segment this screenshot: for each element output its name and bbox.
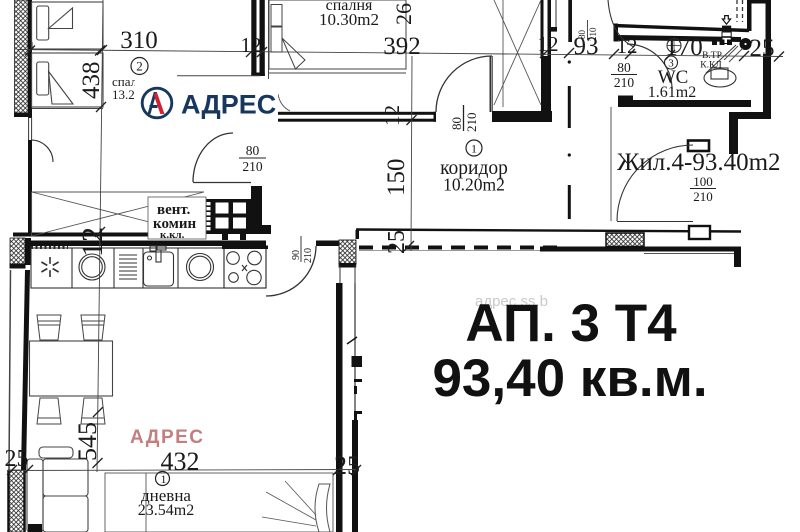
svg-text:12: 12	[241, 33, 262, 57]
svg-text:12: 12	[617, 34, 638, 58]
svg-text:210: 210	[303, 248, 314, 263]
svg-text:210: 210	[588, 27, 598, 41]
svg-text:392: 392	[383, 33, 421, 60]
svg-text:80: 80	[577, 30, 587, 40]
svg-text:10.30m2: 10.30m2	[319, 10, 379, 29]
svg-text:93,40 кв.м.: 93,40 кв.м.	[432, 349, 707, 408]
svg-text:к.кл.: к.кл.	[160, 229, 185, 241]
svg-text:210: 210	[614, 75, 635, 90]
svg-text:545: 545	[73, 422, 102, 461]
svg-text:25: 25	[5, 446, 29, 472]
svg-text:В.ТР: В.ТР	[702, 51, 722, 61]
svg-text:80: 80	[617, 60, 631, 75]
svg-text:210: 210	[464, 113, 479, 133]
svg-text:25: 25	[384, 230, 410, 254]
svg-text:1.61m2: 1.61m2	[648, 84, 696, 101]
svg-text:1: 1	[161, 472, 167, 486]
svg-text:1: 1	[471, 142, 477, 156]
svg-text:90: 90	[291, 250, 302, 260]
svg-text:26: 26	[391, 3, 416, 25]
svg-text:АДРЕС: АДРЕС	[130, 427, 205, 448]
svg-text:АП. 3 Т4: АП. 3 Т4	[465, 294, 677, 353]
svg-text:25: 25	[750, 35, 775, 62]
svg-text:438: 438	[78, 62, 105, 100]
svg-text:2: 2	[136, 59, 143, 74]
svg-text:12: 12	[380, 105, 404, 126]
svg-text:12: 12	[76, 227, 109, 257]
svg-text:210: 210	[693, 189, 713, 204]
svg-text:100: 100	[693, 174, 713, 189]
svg-text:23.54m2: 23.54m2	[138, 502, 194, 519]
svg-text:80: 80	[246, 143, 260, 158]
svg-text:10.20m2: 10.20m2	[443, 175, 505, 195]
svg-text:АДРЕС: АДРЕС	[181, 90, 276, 120]
svg-text:210: 210	[242, 159, 263, 174]
svg-text:80: 80	[449, 117, 464, 130]
svg-text:310: 310	[120, 27, 158, 54]
svg-text:К.КЛ: К.КЛ	[700, 61, 722, 71]
svg-text:Жил.4-93.40m2: Жил.4-93.40m2	[617, 149, 781, 176]
svg-text:12: 12	[538, 32, 559, 56]
svg-text:150: 150	[383, 159, 410, 197]
svg-text:25: 25	[334, 451, 360, 480]
